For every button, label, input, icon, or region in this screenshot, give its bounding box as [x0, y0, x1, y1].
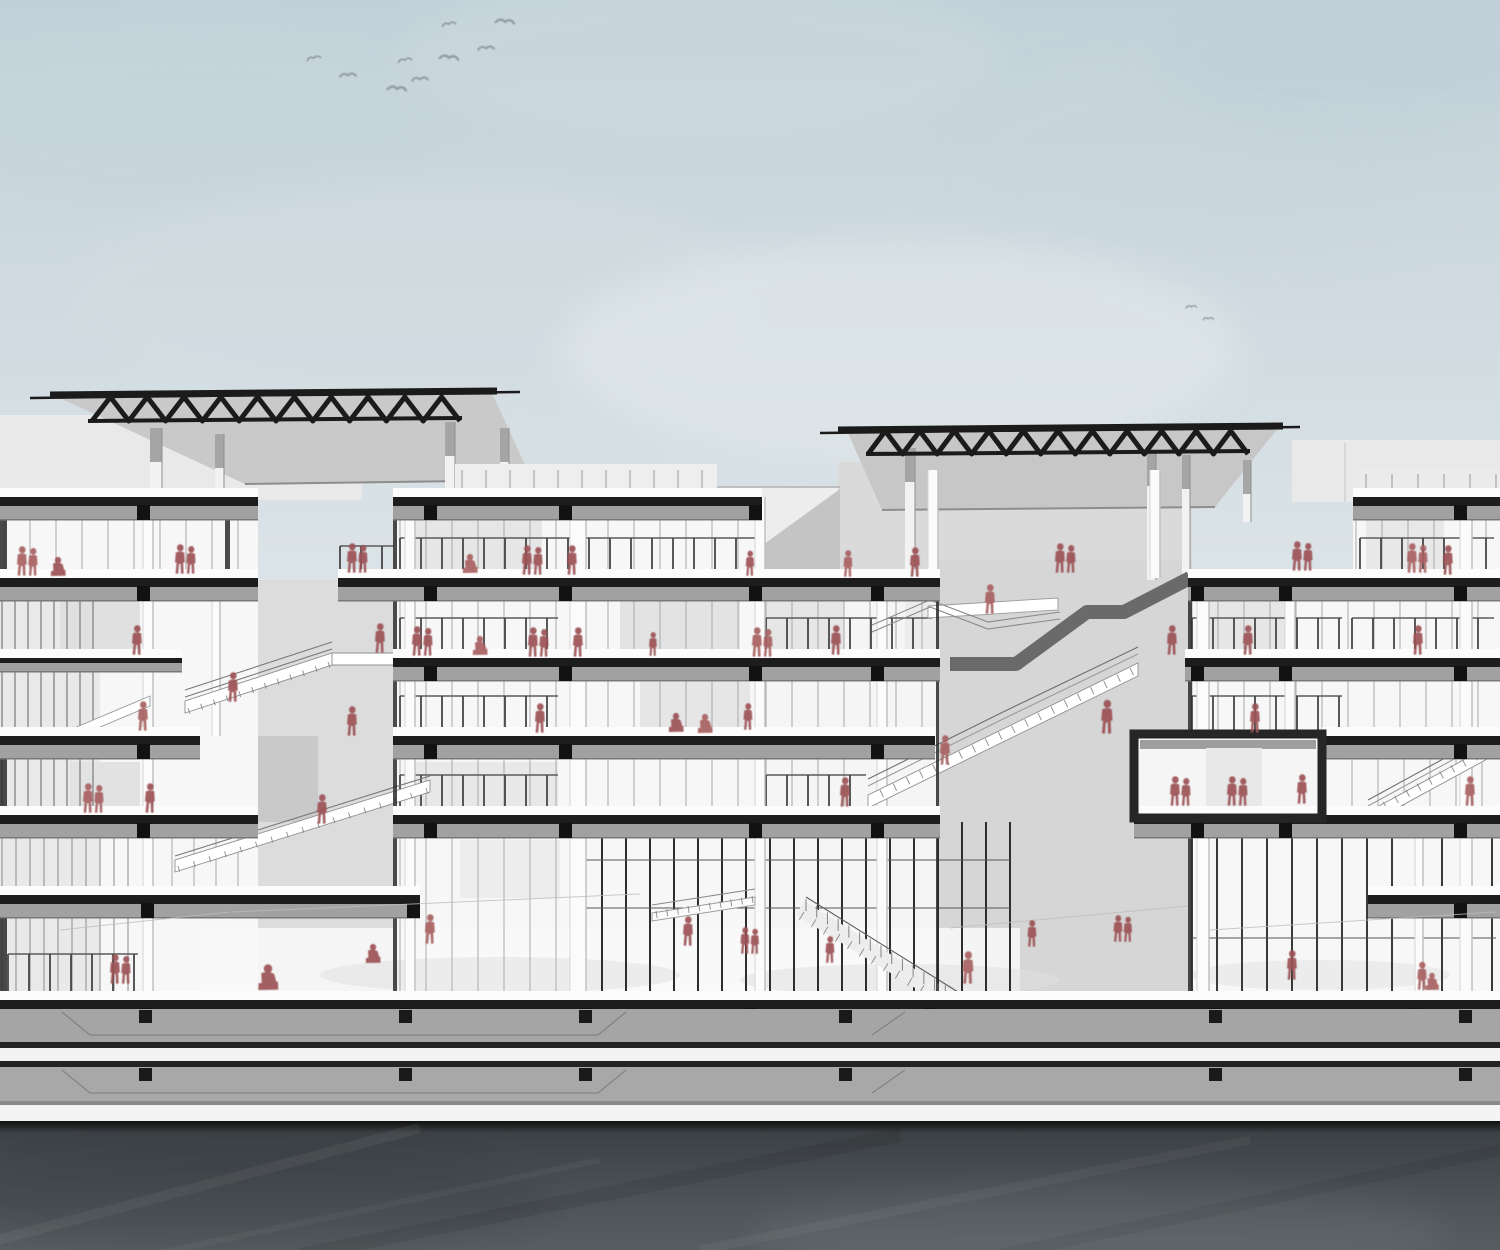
architectural-section-rendering — [0, 0, 1500, 1250]
ground-strata — [0, 1009, 1500, 1133]
dark-ground-band — [0, 1128, 1500, 1250]
section-perspective-canvas — [0, 0, 1500, 1250]
